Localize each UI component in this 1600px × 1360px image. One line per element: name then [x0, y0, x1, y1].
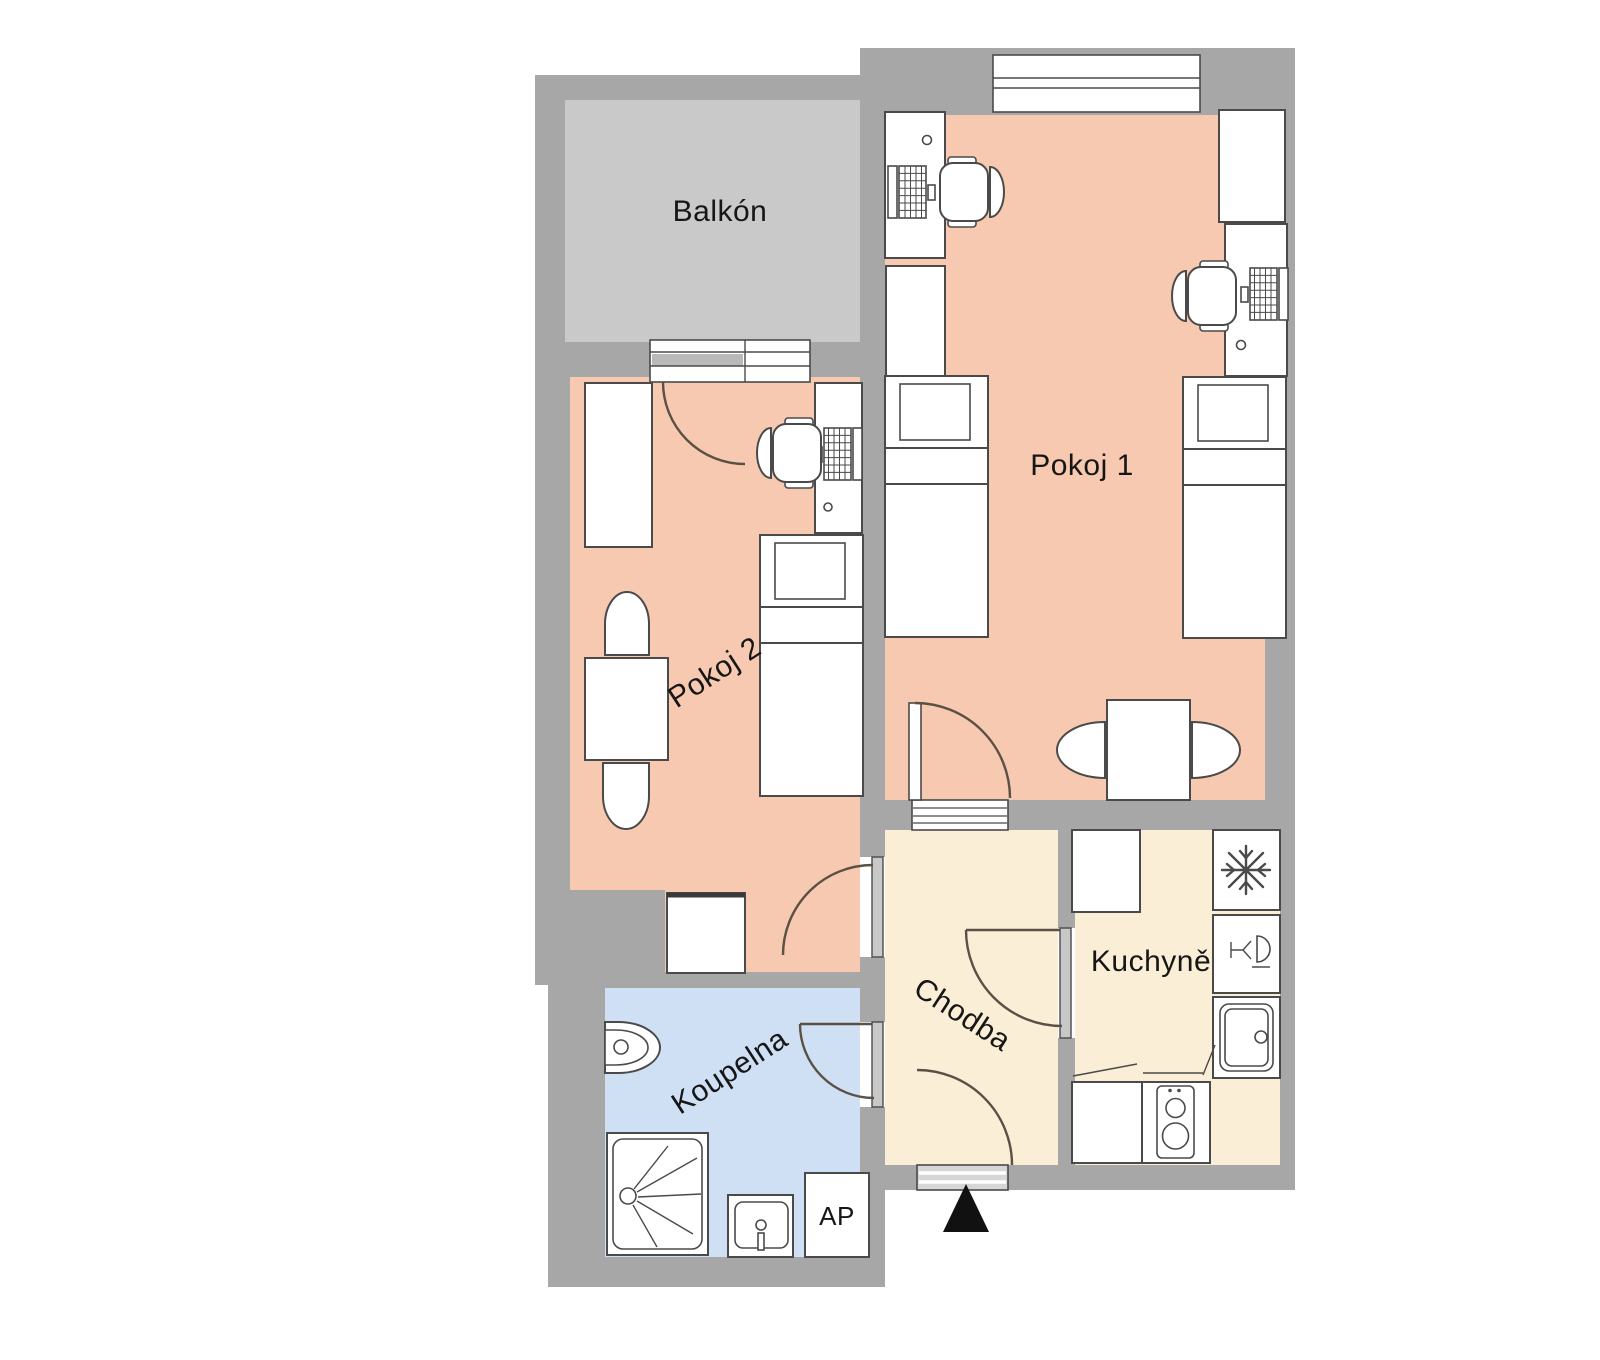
- entrance-arrow-icon: [943, 1184, 989, 1232]
- doorway-bathroom: [860, 1022, 885, 1107]
- wardrobe: [886, 266, 945, 376]
- office-chair: [1172, 261, 1236, 331]
- window-room1: [993, 55, 1200, 112]
- wardrobe: [1219, 110, 1285, 222]
- cabinet: [667, 893, 745, 973]
- room-label-pokoj1: Pokoj 1: [1030, 451, 1134, 481]
- freezer-snowflake-icon: [1213, 830, 1280, 910]
- stove-icon: [1142, 1082, 1210, 1163]
- entrance-threshold: [917, 1165, 1008, 1190]
- kitchen-sink-icon: [1213, 997, 1280, 1078]
- sink-icon: [728, 1195, 793, 1257]
- bed: [1183, 377, 1286, 638]
- cabinet: [1072, 830, 1140, 912]
- bed: [885, 376, 988, 637]
- counter: [1072, 1082, 1142, 1163]
- dining-chair: [603, 763, 649, 829]
- room-label-balkon: Balkón: [673, 197, 768, 227]
- office-chair: [940, 157, 1004, 227]
- desk-knob: [923, 136, 932, 145]
- wardrobe: [585, 383, 652, 547]
- threshold-room1-hall: [912, 800, 1008, 830]
- shower-icon: [607, 1133, 708, 1255]
- washing-machine-label: AP: [819, 1203, 855, 1229]
- table: [585, 658, 668, 760]
- doorway-room2: [860, 857, 885, 957]
- doorway-kitchen: [1058, 928, 1075, 1038]
- desk-knob: [1237, 341, 1246, 350]
- floor-plan-canvas: Balkón Pokoj 1 Pokoj 2 Chodba Kuchyně Ko…: [0, 0, 1600, 1360]
- desk-knob: [824, 503, 832, 511]
- dishwasher-icon: [1213, 915, 1280, 993]
- dining-chair: [605, 592, 649, 655]
- floor-plan: [0, 0, 1600, 1360]
- office-chair: [757, 418, 821, 488]
- balcony-door-window-unit: [650, 340, 810, 382]
- bed: [760, 535, 863, 796]
- room-label-kuchyne: Kuchyně: [1091, 947, 1211, 977]
- table: [1107, 700, 1190, 800]
